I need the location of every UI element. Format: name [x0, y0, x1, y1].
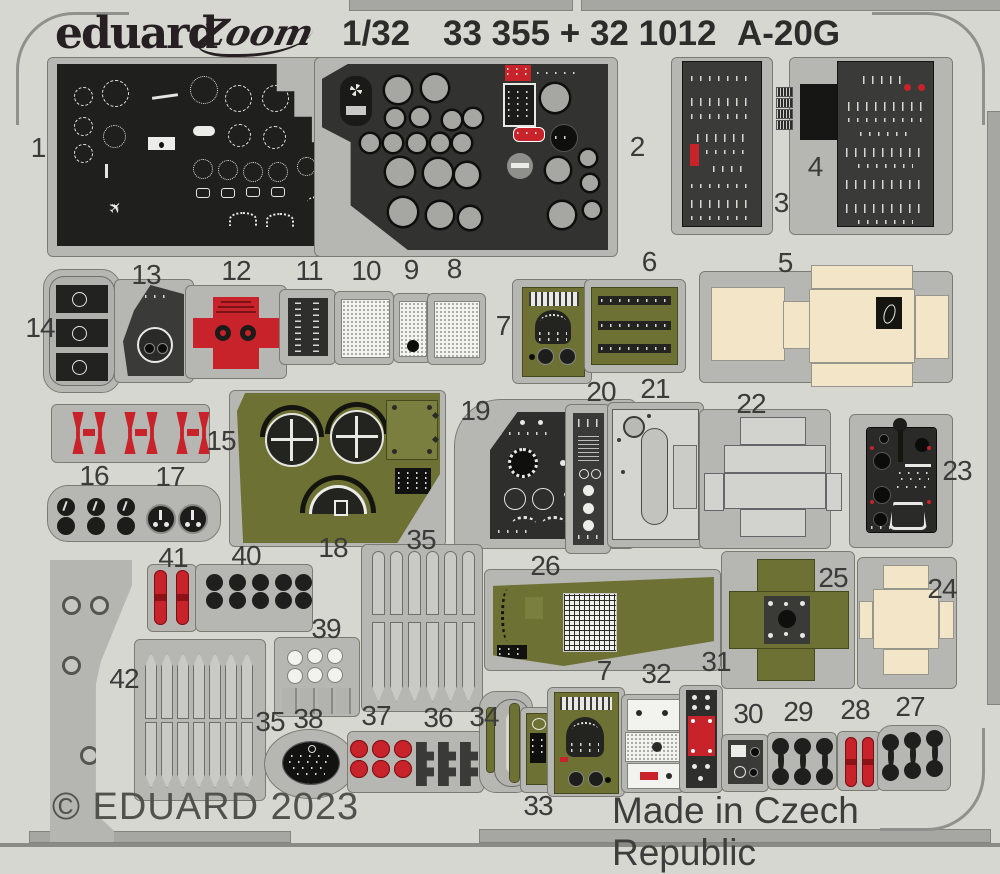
decoration: [395, 468, 431, 494]
part-5-emblem-plate: [876, 297, 902, 329]
part-22-box: [725, 446, 825, 472]
decoration: [240, 325, 256, 341]
decoration: [870, 500, 874, 504]
decoration: [372, 740, 390, 758]
decoration: [904, 762, 921, 779]
decoration: [926, 760, 943, 777]
decoration: [777, 121, 792, 129]
part-number-label: 8: [447, 253, 462, 285]
decoration: [394, 740, 412, 758]
decoration: [229, 592, 246, 609]
decoration: [394, 760, 412, 778]
decoration: [62, 596, 81, 615]
decoration: [579, 469, 589, 479]
decoration: [455, 163, 479, 187]
decoration: [549, 202, 575, 228]
photoetch-sheet-image: { "header": { "brand": "eduard", "series…: [0, 0, 1000, 847]
decoration: [241, 653, 253, 719]
part-7-radio-panel: [523, 288, 584, 376]
brand-logo: eduard: [55, 8, 216, 59]
decoration: [749, 768, 758, 777]
decoration: [221, 188, 235, 198]
subject-label: A-20G: [737, 14, 840, 54]
decoration: [598, 344, 671, 353]
decoration: [117, 517, 135, 535]
decoration: [578, 535, 599, 539]
decoration: [881, 303, 898, 325]
decoration: [777, 99, 792, 107]
part-25-center-plate: [764, 596, 810, 644]
part-11-panel: [288, 298, 328, 356]
part-31-panel-strip: [686, 690, 717, 788]
decoration: [725, 474, 825, 508]
decoration: [291, 755, 331, 757]
decoration: [940, 602, 953, 638]
decoration: [580, 150, 596, 166]
decoration: [487, 708, 494, 772]
part-33-placard-strip: [527, 714, 549, 784]
decoration: [858, 164, 913, 168]
decoration: [424, 159, 452, 187]
decoration: [56, 353, 108, 381]
decoration: [159, 510, 162, 520]
part-4-switch-panel: [838, 62, 933, 226]
decoration: [501, 589, 514, 641]
decoration: [697, 150, 745, 154]
decoration: [443, 111, 461, 129]
part-37-data-placard: [283, 742, 339, 784]
decoration: [196, 188, 210, 198]
series-logo-zoom: Zoom: [194, 12, 318, 57]
part-12-red-cross-panel: [193, 297, 279, 369]
decoration: [899, 472, 931, 474]
decoration: [848, 102, 924, 111]
decoration: [225, 653, 237, 719]
decoration: [778, 610, 796, 628]
part-number-label: 2: [630, 131, 645, 163]
decoration: [74, 117, 93, 136]
decoration: [422, 75, 448, 101]
decoration: [407, 340, 419, 352]
decoration: [640, 772, 658, 780]
decoration: [927, 446, 931, 450]
part-41-red-grip: [154, 570, 167, 625]
decoration: [275, 574, 292, 591]
decoration: [372, 551, 385, 615]
part-36-knob-pair: [350, 740, 368, 758]
decoration: [858, 220, 913, 224]
sheet-right-edge: [988, 112, 1000, 704]
part-5-seat-right-flap: [916, 296, 948, 358]
decoration: [293, 767, 329, 769]
decoration: [873, 452, 891, 470]
part-17-knob: [146, 504, 176, 534]
decoration: [846, 180, 926, 189]
scale-label: 1/32: [342, 14, 410, 54]
decoration: [408, 134, 426, 152]
decoration: [777, 110, 792, 118]
decoration: [245, 330, 251, 336]
decoration: [408, 551, 421, 615]
part-number-label: 33: [523, 790, 552, 822]
decoration: [691, 76, 751, 81]
decoration: [537, 72, 577, 74]
decoration: [74, 144, 93, 163]
decoration: [90, 596, 109, 615]
decoration: [83, 429, 95, 436]
decoration: [288, 669, 302, 683]
part-number-label: 6: [642, 246, 657, 278]
decoration: [408, 622, 421, 702]
decoration: [398, 487, 428, 489]
decoration: [499, 648, 525, 650]
decoration: [691, 114, 751, 119]
decoration: [691, 749, 695, 753]
decoration: [731, 745, 746, 757]
decoration: [532, 745, 544, 747]
decoration: [584, 202, 600, 218]
decoration: [508, 97, 530, 99]
decoration: [62, 656, 81, 675]
decoration: [459, 207, 481, 229]
decoration: [295, 574, 312, 591]
decoration: [193, 722, 205, 788]
decoration: [350, 84, 362, 96]
decoration: [193, 318, 279, 348]
decoration: [578, 435, 599, 461]
decoration: [525, 597, 543, 619]
decoration: [500, 432, 550, 435]
decoration: [546, 158, 570, 182]
part-35-cartridge: [145, 653, 157, 719]
decoration: [508, 448, 538, 478]
decoration: [705, 764, 710, 769]
decoration: [784, 602, 788, 606]
decoration: [295, 302, 301, 352]
decoration: [431, 134, 449, 152]
decoration: [511, 163, 529, 168]
decoration: [691, 184, 751, 188]
decoration: [190, 76, 218, 104]
decoration: [228, 124, 251, 147]
part-35-cartridge: [372, 622, 385, 702]
decoration: [334, 500, 348, 516]
decoration: [560, 757, 568, 762]
decoration: [308, 745, 316, 753]
decoration: [583, 503, 594, 514]
decoration: [705, 474, 723, 510]
decoration: [177, 722, 189, 788]
decoration: [846, 148, 926, 157]
part-number-label: 29: [783, 696, 812, 728]
sheet-top-edge: [350, 0, 572, 10]
decoration: [621, 470, 625, 474]
decoration: [517, 132, 541, 134]
decoration: [734, 766, 746, 778]
decoration: [221, 301, 251, 303]
decoration: [827, 474, 841, 510]
decoration: [386, 158, 414, 186]
decoration: [206, 592, 223, 609]
decoration: [560, 697, 612, 710]
decoration: [860, 132, 910, 136]
decoration: [860, 602, 872, 638]
part-number-label: 12: [221, 255, 250, 287]
decoration: [137, 327, 173, 363]
decoration: [662, 710, 668, 716]
decoration: [144, 343, 155, 354]
decoration: [499, 653, 525, 655]
decoration: [56, 285, 108, 313]
decoration: [392, 405, 397, 410]
part-4-backing-box: [800, 84, 843, 140]
decoration: [209, 653, 221, 719]
decoration: [225, 722, 237, 788]
decoration: [178, 504, 208, 534]
decoration: [505, 65, 531, 81]
decoration: [177, 653, 189, 719]
plane-icon: ✈: [104, 196, 128, 220]
decoration: [690, 144, 699, 166]
decoration: [193, 653, 205, 719]
decoration: [103, 125, 126, 148]
decoration: [566, 717, 604, 757]
part-40-knob-pair: [206, 574, 223, 591]
decoration: [185, 522, 190, 527]
part-number-label: 7: [496, 310, 511, 342]
decoration: [220, 330, 226, 336]
decoration: [72, 360, 87, 375]
decoration: [688, 716, 715, 756]
decoration: [617, 438, 621, 442]
decoration: [372, 760, 390, 778]
decoration: [386, 109, 404, 127]
decoration: [361, 134, 379, 152]
decoration: [266, 213, 294, 227]
part-21-bracket-plate: [613, 410, 698, 539]
decoration: [265, 413, 319, 467]
decoration: [529, 292, 579, 306]
decoration: [508, 103, 530, 105]
decoration: [529, 354, 535, 360]
decoration: [691, 200, 751, 208]
decoration: [691, 216, 751, 220]
decoration: [918, 84, 925, 91]
decoration: [897, 486, 931, 488]
decoration: [512, 516, 536, 531]
decoration: [390, 551, 403, 615]
decoration: [243, 162, 263, 182]
decoration: [164, 522, 169, 527]
decoration: [252, 574, 269, 591]
decoration: [904, 84, 911, 91]
decoration: [246, 187, 260, 197]
decoration: [152, 93, 178, 100]
decoration: [628, 764, 680, 788]
part-20-placard-strip: [573, 413, 604, 545]
decoration: [398, 477, 428, 479]
decoration: [297, 157, 316, 176]
decoration: [905, 464, 931, 467]
decoration: [384, 134, 402, 152]
decoration: [873, 486, 891, 504]
decoration: [229, 212, 257, 226]
part-22-box-top-flap: [741, 418, 805, 444]
decoration: [507, 68, 529, 70]
decoration: [572, 722, 598, 737]
decoration: [598, 296, 671, 305]
part-30-switch-box: [728, 740, 763, 784]
decoration: [563, 593, 617, 652]
decoration: [427, 449, 432, 454]
part-7-radio-panel-lower: [555, 693, 618, 793]
decoration: [157, 343, 168, 354]
decoration: [271, 187, 285, 197]
decoration: [161, 653, 173, 719]
decoration: [901, 478, 929, 480]
decoration: [641, 428, 668, 525]
part-3-switch-panel: [683, 62, 761, 226]
decoration: [308, 668, 322, 682]
decoration: [385, 77, 411, 103]
part-5-seat-hinge: [784, 302, 810, 348]
decoration: [498, 530, 528, 533]
decoration: [871, 526, 891, 529]
decoration: [708, 719, 712, 723]
decoration: [601, 299, 668, 302]
decoration: [750, 747, 760, 757]
decoration: [713, 166, 745, 172]
decoration: [542, 516, 566, 531]
part-5-seat-main: [810, 290, 914, 362]
decoration: [862, 737, 874, 787]
decoration: [882, 764, 899, 781]
decoration: [215, 325, 231, 341]
decoration: [559, 348, 576, 365]
part-number-label: 11: [295, 255, 322, 287]
decoration: [462, 622, 475, 702]
decoration: [444, 551, 457, 615]
decoration: [666, 773, 672, 779]
decoration: [705, 705, 710, 710]
decoration: [870, 446, 874, 450]
part-number-label: 30: [733, 698, 762, 730]
decoration: [508, 109, 530, 111]
decoration: [398, 472, 428, 474]
part-number-label: 28: [840, 694, 869, 726]
decoration: [153, 522, 158, 527]
decoration: [601, 347, 668, 350]
decoration: [532, 751, 544, 753]
decoration: [340, 76, 372, 126]
decoration: [297, 773, 325, 775]
part-8-film: [435, 302, 479, 357]
part-number-label: 1: [31, 132, 46, 164]
decoration: [507, 73, 529, 75]
part-28-red-grip: [845, 737, 857, 787]
decoration: [159, 142, 164, 148]
decoration: [647, 414, 651, 418]
decoration: [582, 175, 598, 191]
decoration: [218, 306, 254, 308]
decoration: [692, 705, 697, 710]
decoration: [532, 739, 544, 741]
part-32-placard: [628, 700, 680, 730]
decoration: [540, 314, 566, 329]
part-10-film: [342, 300, 389, 357]
decoration: [848, 118, 924, 122]
decoration: [263, 126, 286, 149]
decoration: [389, 198, 417, 226]
part-24-box-unfold: [884, 566, 928, 588]
decoration: [539, 332, 567, 335]
decoration: [530, 733, 546, 763]
decoration: [271, 438, 313, 441]
decoration: [583, 485, 594, 496]
decoration: [462, 551, 475, 615]
decoration: [193, 159, 213, 179]
small-grille-parts: [777, 88, 792, 96]
decoration: [328, 649, 342, 663]
decoration: [508, 115, 530, 117]
decoration: [541, 84, 569, 112]
decoration: [873, 512, 888, 527]
decoration: [387, 401, 437, 459]
decoration: [568, 771, 584, 787]
decoration: [216, 311, 256, 313]
part-number-label: 3: [774, 187, 789, 219]
part-23-control-box: [867, 428, 936, 532]
decoration: [535, 310, 571, 344]
decoration: [426, 622, 439, 702]
decoration: [427, 405, 432, 410]
decoration: [768, 633, 773, 638]
decoration: [102, 80, 129, 107]
decoration: [209, 722, 221, 788]
part-6-panel: [592, 288, 677, 364]
decoration: [252, 592, 269, 609]
decoration: [275, 592, 292, 609]
decoration: [555, 136, 573, 139]
decoration: [308, 649, 322, 663]
decoration: [538, 420, 543, 425]
decoration: [504, 488, 526, 510]
decoration: [426, 551, 439, 615]
decoration: [193, 126, 215, 136]
decoration: [532, 488, 554, 510]
decoration: [196, 522, 201, 527]
decoration: [313, 302, 319, 352]
decoration: [507, 153, 533, 179]
decoration: [588, 771, 604, 787]
decoration: [241, 722, 253, 788]
decoration: [583, 520, 594, 531]
decoration: [225, 85, 252, 112]
decoration: [800, 633, 805, 638]
decoration: [191, 510, 194, 520]
decoration: [578, 419, 599, 427]
decoration: [289, 761, 333, 763]
part-number-label: 9: [404, 254, 419, 286]
decoration: [571, 749, 599, 752]
decoration: [328, 668, 342, 682]
catalog-numbers: 33 355 + 32 1012: [443, 14, 716, 54]
decoration: [105, 164, 108, 178]
decoration: [601, 324, 668, 327]
part-number-label: 21: [640, 373, 669, 405]
decoration: [800, 601, 805, 606]
decoration: [591, 469, 601, 479]
